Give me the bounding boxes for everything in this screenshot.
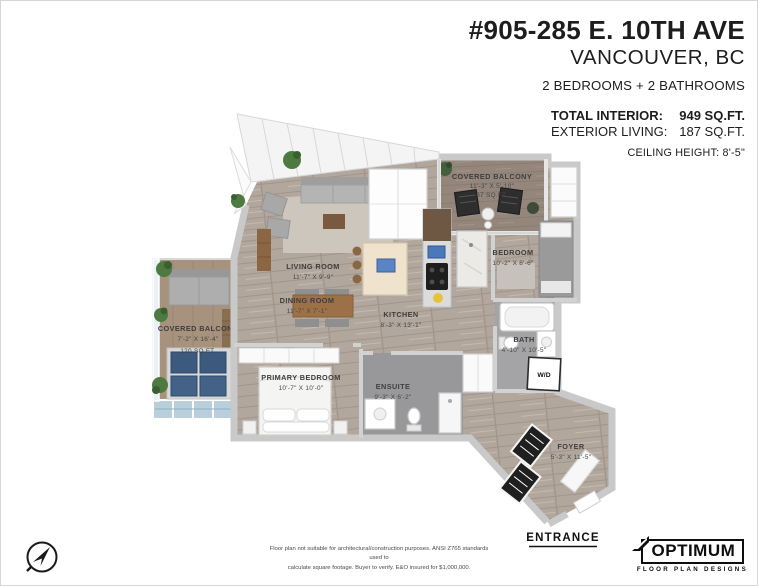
bed-bath-summary: 2 BEDROOMS + 2 BATHROOMS (469, 78, 745, 93)
compass-icon (21, 537, 63, 579)
faucet-icon (469, 243, 473, 247)
coffee-table-icon (323, 214, 345, 229)
entrance: ENTRANCE (526, 532, 600, 547)
washer-dryer-icon: W/D (527, 357, 561, 391)
covered-balcony-left-label: COVERED BALCONY (158, 324, 238, 333)
covered-balcony-right-area: 67 SQ.FT. (476, 192, 507, 199)
ceiling-height: CEILING HEIGHT: 8'-5" (551, 147, 745, 159)
marble-counter-icon (457, 231, 487, 287)
ensuite-dims: 9'-3" X 6'-2" (374, 394, 411, 401)
bedroom-label: BEDROOM (493, 248, 534, 257)
primary-bedroom-dims: 10'-7" X 10'-0" (279, 385, 324, 392)
wardrobe-icon (551, 167, 577, 217)
plant-icon (527, 202, 539, 214)
optimum-swoosh-arrow-icon (632, 534, 652, 554)
flowers-icon (433, 293, 443, 303)
ensuite-label: ENSUITE (376, 382, 410, 391)
disclaimer-line-2: calculate square footage. Buyer to verif… (263, 564, 495, 573)
bath-label: BATH (513, 335, 534, 344)
outdoor-sofa-icon (169, 269, 229, 305)
bath-dims: 4'-10" X 10'-5" (502, 347, 547, 354)
cream-island-icon (363, 243, 407, 295)
address-line-2: VANCOUVER, BC (469, 46, 745, 70)
dining-room-label: DINING ROOM (280, 296, 335, 305)
shower-icon (439, 393, 461, 433)
optimum-logo-box: OPTIMUM (641, 539, 745, 564)
kitchen-dims: 8'-3" X 13'-1" (380, 322, 421, 329)
optimum-logo: OPTIMUM FLOOR PLAN DESIGNS (637, 539, 748, 573)
exterior-living-row: EXTERIOR LIVING: 187 SQ.FT. (551, 124, 745, 141)
bathtub-icon (500, 303, 554, 331)
covered-balcony-left-area: 120 SQ.FT. (180, 348, 215, 355)
toilet-icon (407, 408, 421, 431)
nightstand-icon (243, 421, 256, 434)
entrance-label: ENTRANCE (526, 532, 600, 544)
dining-room-dims: 11'-7" X 7'-1" (287, 308, 328, 315)
living-room-dims: 11'-7" X 9'-9" (293, 274, 334, 281)
foyer-dims: 5'-3" X 11'-5" (551, 454, 592, 461)
bed-icon (539, 221, 573, 297)
foyer-label: FOYER (557, 442, 584, 451)
washer-dryer-label: W/D (537, 372, 550, 379)
covered-balcony-left-dims: 7'-2" X 16'-4" (177, 336, 218, 343)
kitchen-island-icon (423, 209, 451, 307)
logo-title: OPTIMUM (652, 541, 736, 561)
covered-balcony-right-label: COVERED BALCONY (452, 172, 532, 181)
closet-icon (239, 348, 339, 363)
living-room-label: LIVING ROOM (286, 262, 339, 271)
floor-plan-page: #905-285 E. 10TH AVE VANCOUVER, BC 2 BED… (0, 0, 758, 586)
hall-closet-icon (463, 354, 493, 392)
total-interior-value: 949 SQ.FT. (679, 108, 745, 125)
disclaimer-line-1: Floor plan not suitable for architectura… (263, 545, 495, 564)
covered-balcony-right-dims: 11'-3" X 5'-10" (470, 183, 514, 190)
exterior-living-value: 187 SQ.FT. (679, 124, 745, 141)
vanity-sink-icon (365, 399, 395, 429)
listing-header: #905-285 E. 10TH AVE VANCOUVER, BC 2 BED… (469, 16, 745, 159)
tall-cabinets-icon (369, 169, 427, 239)
bedroom-dims: 10'-2" X 8'-6" (492, 260, 533, 267)
bar-stool-icon (353, 247, 362, 284)
exterior-living-label: EXTERIOR LIVING: (551, 124, 667, 141)
total-interior-label: TOTAL INTERIOR: (551, 108, 663, 125)
nightstand-icon (334, 421, 347, 434)
covered-balcony-right: COVERED BALCONY 11'-3" X 5'-10" 67 SQ.FT… (438, 159, 546, 233)
wood-sideboard-icon (257, 229, 271, 271)
kitchen-label: KITCHEN (383, 310, 418, 319)
total-interior-row: TOTAL INTERIOR: 949 SQ.FT. (551, 108, 745, 125)
navy-sectional-icon (167, 348, 231, 399)
area-stats: TOTAL INTERIOR: 949 SQ.FT. EXTERIOR LIVI… (551, 108, 745, 160)
address-line-1: #905-285 E. 10TH AVE (469, 16, 745, 45)
disclaimer: Floor plan not suitable for architectura… (263, 545, 495, 573)
primary-bedroom-label: PRIMARY BEDROOM (261, 373, 340, 382)
logo-subtitle: FLOOR PLAN DESIGNS (637, 566, 748, 573)
covered-balcony-left: COVERED BALCONY 7'-2" X 16'-4" 120 SQ.FT… (152, 259, 238, 419)
